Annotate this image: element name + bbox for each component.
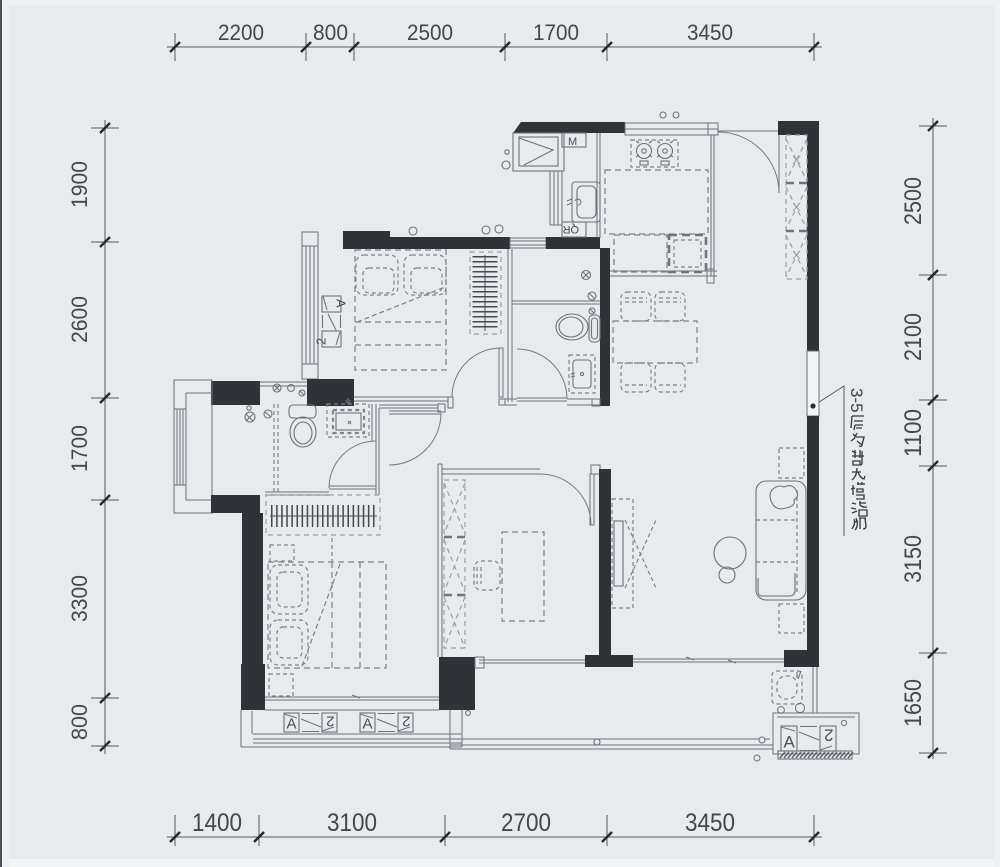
svg-text:3450: 3450 [687, 20, 733, 45]
svg-text:1650: 1650 [900, 679, 927, 727]
svg-text:M: M [568, 136, 577, 148]
svg-text:800: 800 [313, 20, 348, 45]
svg-text:1900: 1900 [67, 161, 92, 208]
svg-text:3300: 3300 [67, 575, 92, 622]
svg-text:A: A [784, 733, 796, 752]
svg-text:QR: QR [562, 223, 579, 235]
svg-text:2700: 2700 [501, 809, 551, 837]
svg-text:A: A [287, 716, 297, 733]
svg-text:1700: 1700 [533, 20, 579, 45]
svg-text:2200: 2200 [218, 20, 264, 45]
svg-text:A: A [334, 299, 349, 308]
svg-text:1100: 1100 [900, 409, 927, 457]
svg-text:2100: 2100 [900, 313, 927, 361]
svg-text:2: 2 [824, 726, 833, 745]
svg-text:A: A [363, 716, 373, 733]
svg-text:2500: 2500 [407, 20, 453, 45]
svg-text:2500: 2500 [900, 177, 927, 225]
svg-text:3-5: 3-5 [847, 388, 866, 413]
svg-text:1700: 1700 [67, 425, 92, 472]
svg-text:800: 800 [67, 704, 92, 740]
svg-text:3450: 3450 [685, 809, 735, 837]
svg-text:1400: 1400 [192, 809, 242, 837]
svg-text:2600: 2600 [67, 296, 92, 343]
svg-text:2: 2 [314, 338, 329, 345]
svg-text:3150: 3150 [900, 535, 927, 583]
svg-text:3100: 3100 [327, 809, 377, 837]
